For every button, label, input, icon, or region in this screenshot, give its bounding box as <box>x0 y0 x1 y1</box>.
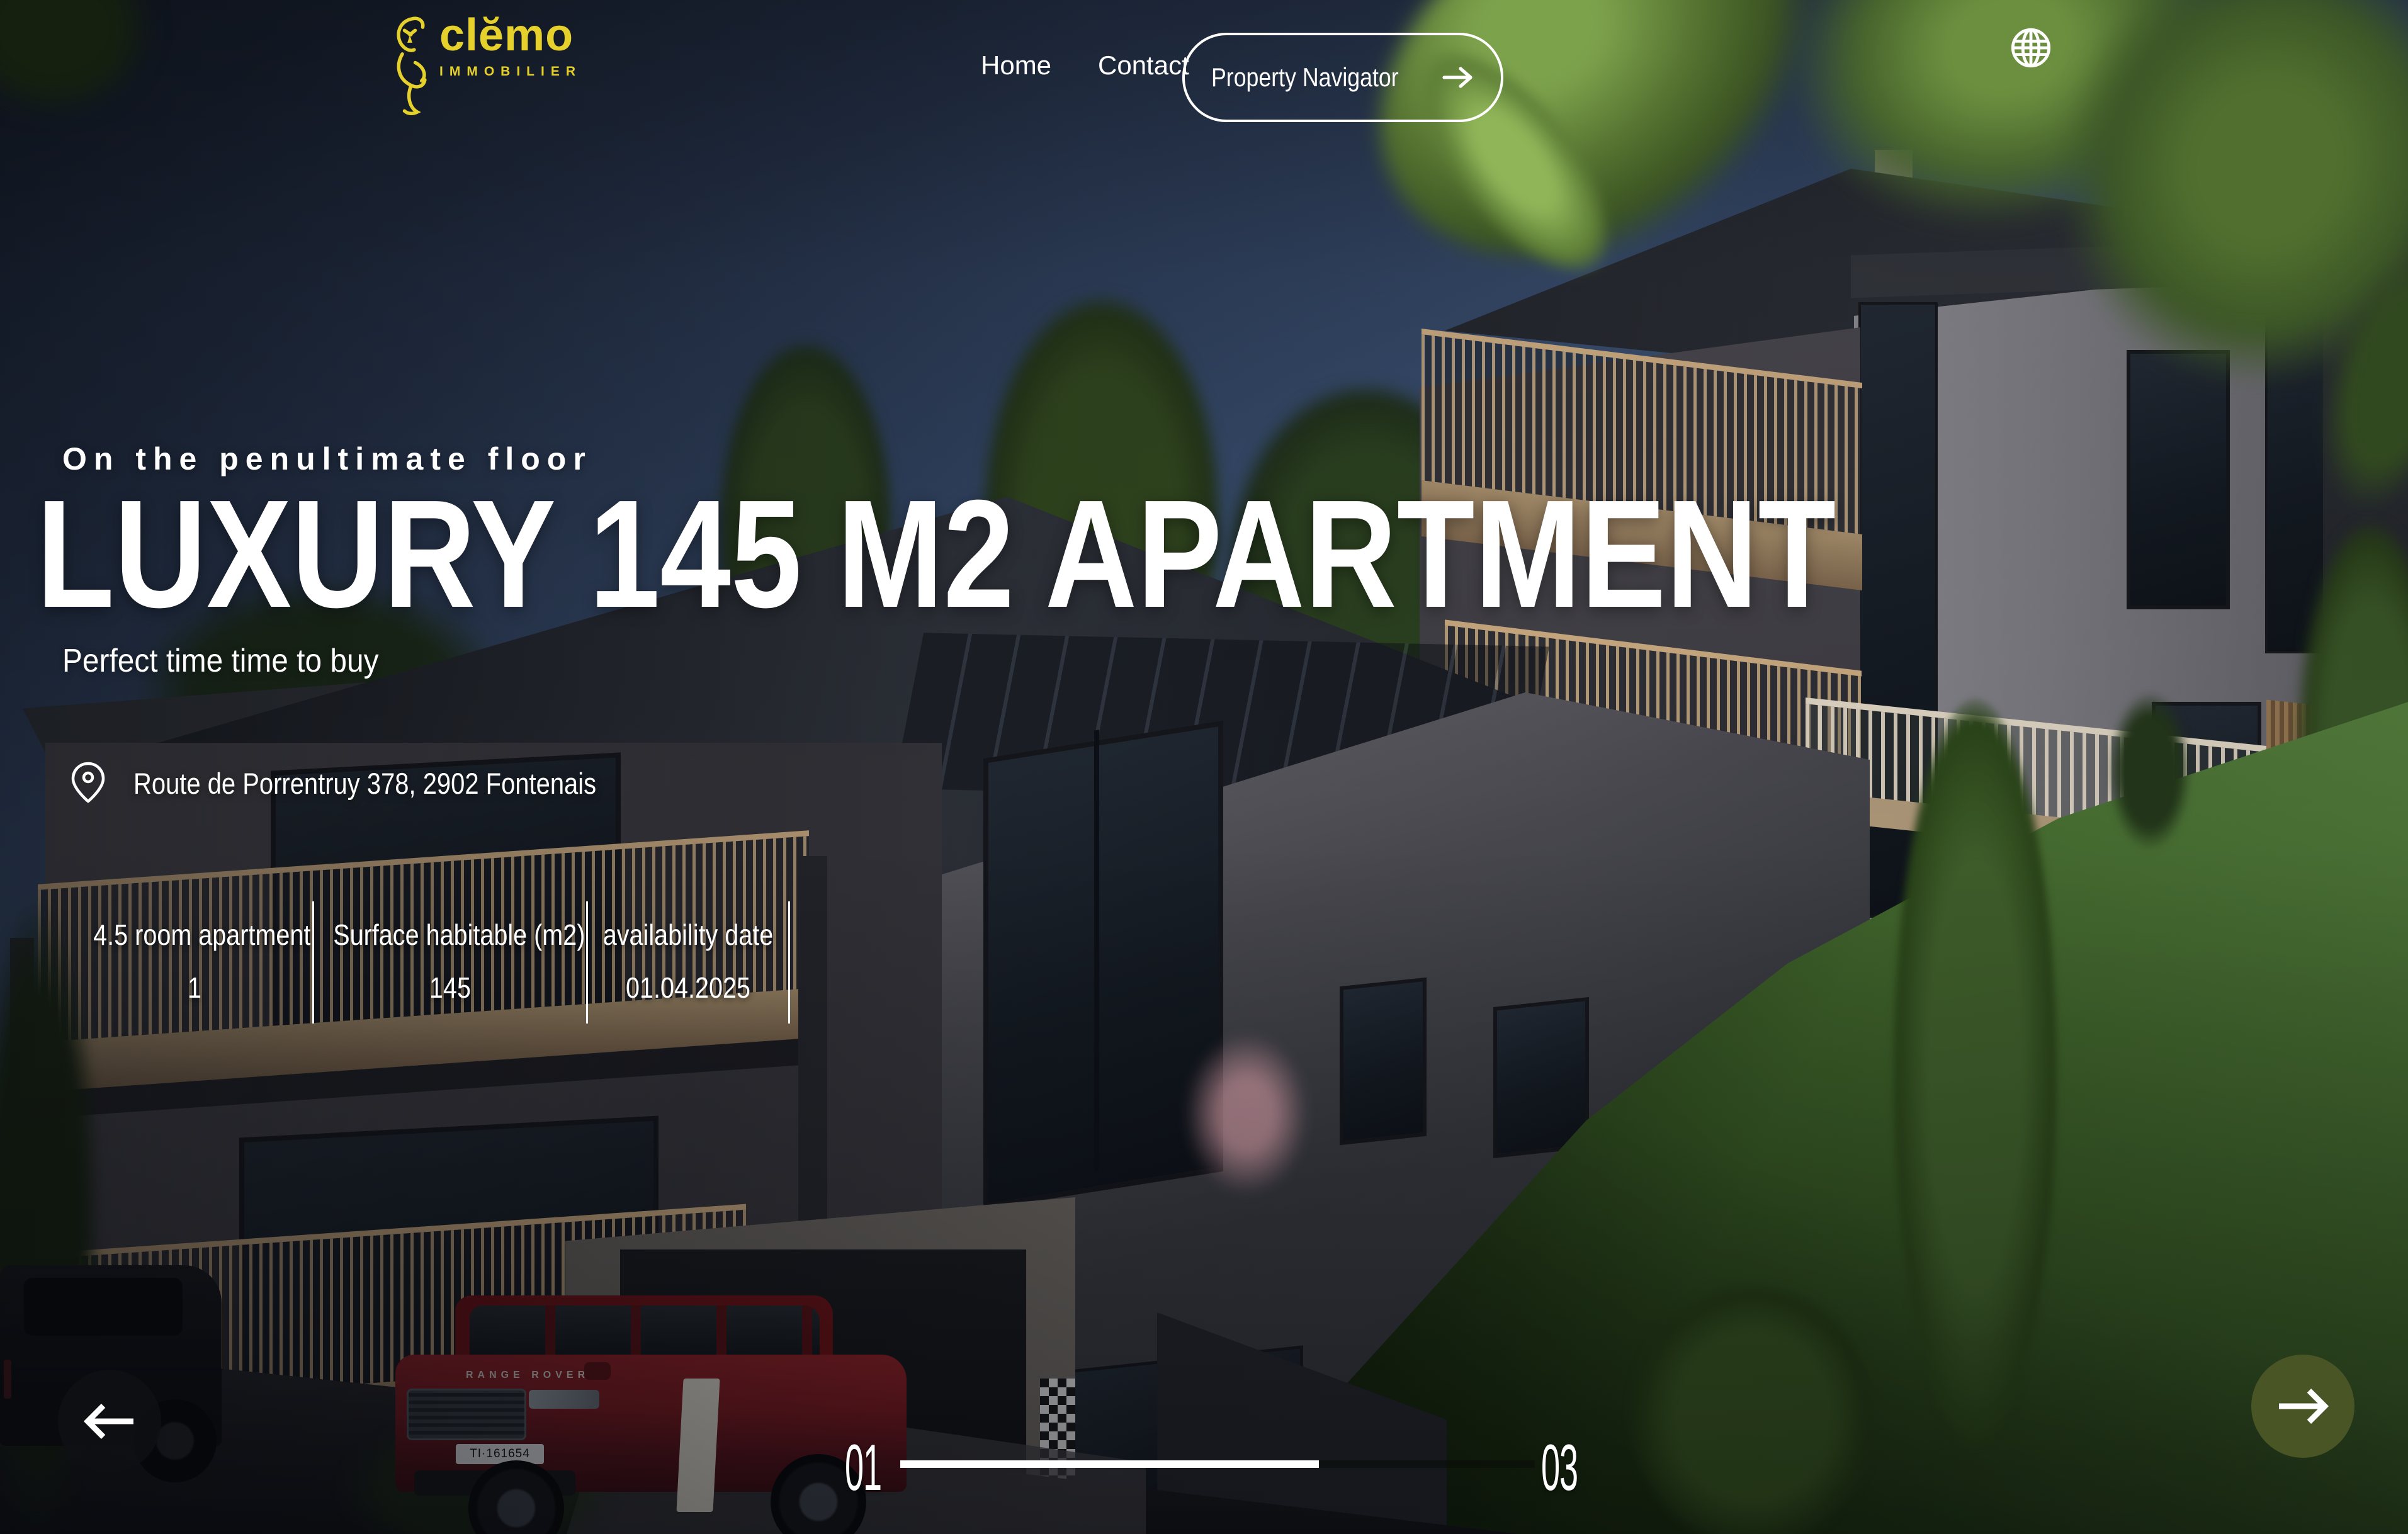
property-stats: 4.5 room apartment 1 Surface habitable (… <box>77 901 790 1024</box>
arrow-right-icon <box>2276 1385 2329 1427</box>
slider-progress <box>900 1460 1319 1468</box>
page-title: LUXURY 145 M2 APARTMENT <box>37 477 1836 631</box>
owl-logo-icon <box>392 15 428 121</box>
slide-current: 01 <box>845 1435 881 1501</box>
arrow-right-icon <box>1442 65 1474 90</box>
slider-track[interactable] <box>900 1460 1535 1468</box>
location-pin-icon <box>68 750 108 816</box>
stat-value: 01.04.2025 <box>602 971 774 1005</box>
stat-surface: Surface habitable (m2) 145 <box>314 901 588 1024</box>
stat-label: 4.5 room apartment <box>93 918 296 952</box>
page: RANGE ROVER TI·161654 <box>0 0 2408 1534</box>
hero-subtitle: Perfect time time to buy <box>62 642 379 680</box>
globe-icon <box>2009 26 2052 69</box>
next-slide-button[interactable] <box>2251 1355 2354 1458</box>
stat-label: Surface habitable (m2) <box>333 918 567 952</box>
nav-home[interactable]: Home <box>981 50 1051 81</box>
prev-slide-button[interactable] <box>58 1370 161 1473</box>
stat-label: availability date <box>602 918 774 952</box>
slide-total: 03 <box>1541 1435 1578 1501</box>
property-navigator-label: Property Navigator <box>1211 62 1399 93</box>
property-navigator-button[interactable]: Property Navigator <box>1182 33 1503 122</box>
language-globe-button[interactable] <box>2009 26 2052 69</box>
brand-wordmark: clĕmo IMMOBILIER <box>439 15 582 79</box>
stat-value: 1 <box>93 971 296 1005</box>
stat-value: 145 <box>333 971 567 1005</box>
brand-name: clĕmo <box>439 15 582 55</box>
arrow-left-icon <box>83 1401 136 1442</box>
property-address: Route de Porrentruy 378, 2902 Fontenais <box>133 766 596 801</box>
brand-logo[interactable]: clĕmo IMMOBILIER <box>392 15 582 121</box>
brand-subtitle: IMMOBILIER <box>439 64 582 79</box>
address-row: Route de Porrentruy 378, 2902 Fontenais <box>68 750 678 816</box>
stat-availability: availability date 01.04.2025 <box>588 901 790 1024</box>
nav-contact[interactable]: Contact <box>1098 50 1189 81</box>
stat-rooms: 4.5 room apartment 1 <box>77 901 314 1024</box>
